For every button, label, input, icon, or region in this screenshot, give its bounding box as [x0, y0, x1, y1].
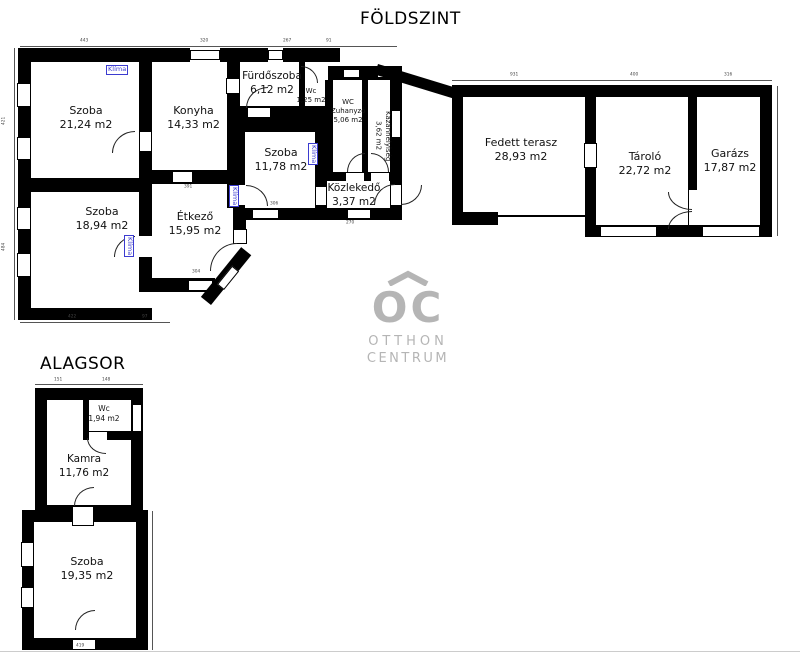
- door-opening: [139, 236, 152, 257]
- dimension-line: [20, 46, 397, 47]
- room-label-fedett-terasz: Fedett terasz 28,93 m2: [471, 136, 571, 165]
- ground-floor-title: FÖLDSZINT: [360, 9, 461, 29]
- window: [21, 587, 34, 608]
- room-label-etkezo: Étkező 15,95 m2: [147, 210, 243, 239]
- room-label-konyha: Konyha 14,33 m2: [146, 104, 241, 133]
- room-label-wc-zuhanyzo: WC Zuhanyzó 5,06 m2: [331, 98, 365, 124]
- logo-mark: OC: [348, 286, 468, 330]
- dimension: 97: [142, 314, 148, 319]
- dimension: 316: [724, 72, 732, 77]
- door-arc: [112, 131, 135, 153]
- window: [252, 209, 279, 219]
- klima-label: Klíma: [124, 235, 134, 257]
- room-label-kazanhelyiseg: Kazánhelyiség 3,62 m2: [366, 93, 392, 179]
- window: [17, 83, 31, 107]
- page-separator-line: [0, 651, 800, 652]
- window: [347, 209, 371, 219]
- dimension-line: [452, 80, 772, 81]
- otthon-centrum-logo: OC OTTHON CENTRUM: [348, 270, 468, 366]
- door-opening: [346, 173, 364, 181]
- window: [268, 50, 283, 60]
- window: [132, 404, 142, 432]
- window: [17, 207, 31, 230]
- klima-label: Klíma: [106, 65, 128, 75]
- door-arc: [668, 192, 692, 210]
- klima-label: Klíma: [308, 143, 318, 165]
- door-opening: [72, 506, 94, 526]
- dimension: 151: [54, 377, 62, 382]
- wall: [18, 48, 190, 62]
- dimension: 320: [200, 38, 208, 43]
- logo-line2: CENTRUM: [348, 351, 468, 366]
- klima-label: Klíma: [229, 185, 239, 207]
- door-arc: [347, 153, 365, 172]
- room-label-szoba-1894: Szoba 18,94 m2: [52, 205, 152, 234]
- room-label-kamra: Kamra 11,76 m2: [36, 453, 132, 480]
- door-arc: [74, 487, 94, 506]
- dimension: 400: [630, 72, 638, 77]
- window: [702, 226, 760, 237]
- logo-line1: OTTHON: [348, 334, 468, 349]
- dimension: 419: [76, 643, 84, 648]
- wall: [18, 178, 152, 192]
- dimension: 443: [80, 38, 88, 43]
- door-arc: [87, 438, 106, 454]
- wall: [22, 510, 34, 650]
- dimension: 304: [192, 269, 200, 274]
- wall: [220, 48, 268, 62]
- room-label-kozlekedo: Közlekedő 3,37 m2: [316, 182, 392, 209]
- dimension: 306: [270, 201, 278, 206]
- dimension: 931: [510, 72, 518, 77]
- door-arc: [401, 185, 422, 205]
- door-arc: [246, 185, 268, 206]
- window: [343, 69, 360, 78]
- door-opening: [139, 131, 152, 152]
- dimension-line: [152, 511, 153, 650]
- room-label-szoba-1935: Szoba 19,35 m2: [39, 555, 135, 584]
- door-arc: [668, 211, 692, 229]
- room-label-wc-194: Wc 1,94 m2: [84, 404, 124, 424]
- wall: [452, 212, 498, 225]
- wall: [35, 388, 143, 400]
- window: [190, 50, 220, 60]
- room-label-garazs: Garázs 17,87 m2: [680, 147, 780, 176]
- dimension: 391: [184, 184, 192, 189]
- dimension-line: [35, 384, 143, 385]
- dimension-line: [14, 48, 15, 320]
- wall: [283, 48, 340, 62]
- window: [21, 542, 34, 567]
- dimension-line: [777, 86, 778, 236]
- wall: [136, 510, 148, 650]
- door-opening: [172, 171, 193, 183]
- dimension: 422: [68, 314, 76, 319]
- window: [600, 226, 657, 237]
- dimension: 421: [1, 117, 6, 125]
- wall: [452, 85, 463, 225]
- floor-plan: FÖLDSZINT ALAGSOR: [0, 0, 800, 655]
- dimension-line: [20, 322, 170, 323]
- window: [17, 137, 31, 160]
- room-label-szoba-2124: Szoba 21,24 m2: [36, 104, 136, 133]
- basement-title: ALAGSOR: [40, 354, 125, 374]
- window: [391, 110, 401, 138]
- dimension: 270: [346, 220, 354, 225]
- dimension: 91: [326, 38, 332, 43]
- room-label-wc-125: Wc 1,25 m2: [294, 87, 328, 105]
- dimension: 148: [102, 377, 110, 382]
- dimension: 267: [283, 38, 291, 43]
- dimension: 484: [1, 243, 6, 251]
- window: [17, 253, 31, 277]
- wall: [18, 308, 152, 320]
- door-arc: [75, 610, 95, 630]
- door-arc: [210, 243, 237, 271]
- wall: [452, 85, 772, 97]
- door-opening: [248, 108, 270, 117]
- wall: [233, 118, 327, 132]
